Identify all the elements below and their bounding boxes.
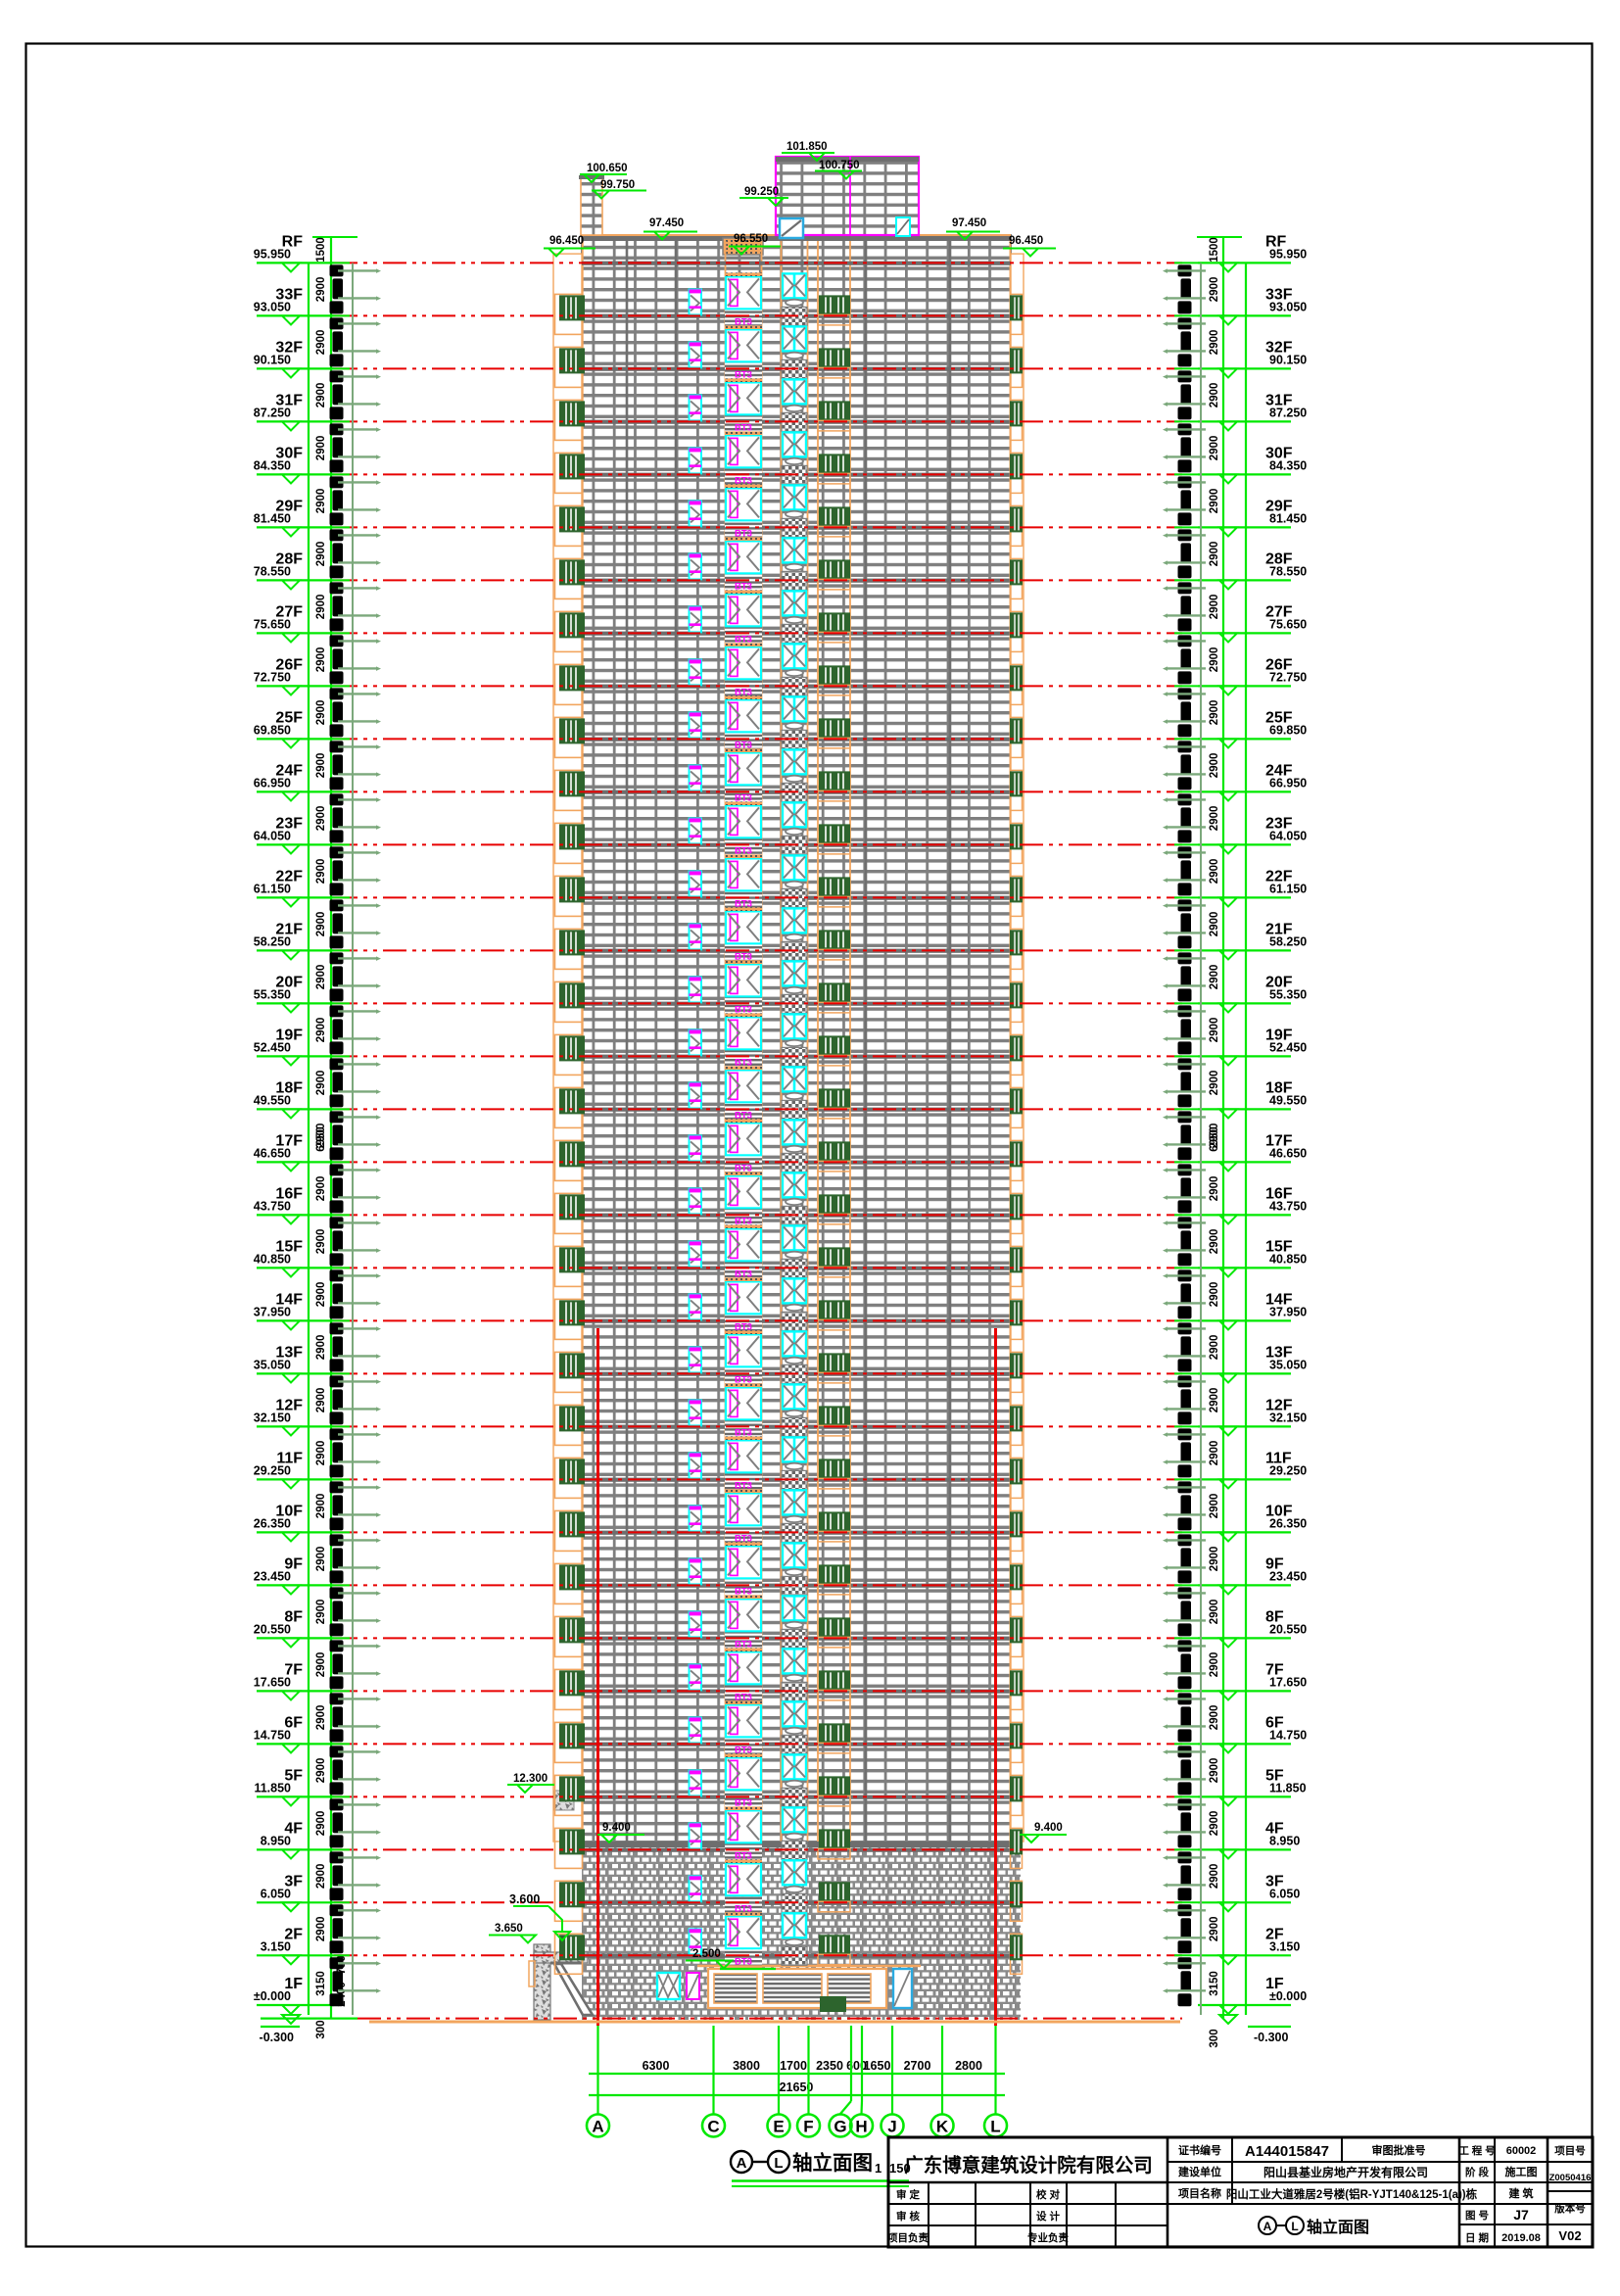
- svg-text:43.750: 43.750: [1269, 1199, 1307, 1213]
- svg-text:2900: 2900: [315, 542, 327, 567]
- svg-text:2900: 2900: [1209, 383, 1220, 408]
- svg-text:64.050: 64.050: [1269, 829, 1307, 842]
- svg-text:61.150: 61.150: [254, 882, 291, 895]
- svg-text:2900: 2900: [1209, 1282, 1220, 1308]
- svg-text:2900: 2900: [1209, 859, 1220, 885]
- svg-text:12.300: 12.300: [513, 1773, 548, 1785]
- svg-text:2900: 2900: [315, 1917, 327, 1942]
- svg-text:58.250: 58.250: [1269, 934, 1307, 948]
- svg-text:1700: 1700: [780, 2059, 807, 2073]
- svg-text:46.650: 46.650: [254, 1146, 291, 1160]
- svg-text:2900: 2900: [315, 383, 327, 408]
- svg-text:J: J: [887, 2118, 896, 2136]
- svg-text:75.650: 75.650: [1269, 617, 1307, 631]
- svg-text:100.750: 100.750: [819, 160, 860, 171]
- svg-text:2900: 2900: [1209, 1335, 1220, 1361]
- svg-text:20.550: 20.550: [1269, 1622, 1307, 1636]
- svg-text:±0.000: ±0.000: [254, 1989, 291, 2003]
- svg-text:14.750: 14.750: [1269, 1728, 1307, 1742]
- svg-text:2900: 2900: [315, 647, 327, 673]
- svg-text:66.950: 66.950: [254, 776, 291, 789]
- svg-text:3800: 3800: [733, 2059, 760, 2073]
- svg-text:2900: 2900: [315, 1018, 327, 1043]
- svg-text:2900: 2900: [315, 1705, 327, 1731]
- svg-text:6950: 6950: [1209, 1126, 1220, 1152]
- svg-text:6300: 6300: [643, 2059, 670, 2073]
- svg-text:2.500: 2.500: [692, 1948, 721, 1960]
- svg-text:2900: 2900: [315, 806, 327, 832]
- svg-text:84.350: 84.350: [254, 458, 291, 472]
- svg-text:图 号: 图 号: [1465, 2210, 1489, 2222]
- svg-text:37.950: 37.950: [1269, 1305, 1307, 1318]
- svg-text:2900: 2900: [315, 489, 327, 514]
- svg-text:C: C: [707, 2118, 719, 2136]
- svg-text:6950: 6950: [315, 1126, 327, 1152]
- svg-text:3.150: 3.150: [261, 1939, 291, 1953]
- svg-text:2900: 2900: [315, 1811, 327, 1837]
- svg-text:校 对: 校 对: [1036, 2188, 1060, 2201]
- svg-text:Z0050416: Z0050416: [1549, 2173, 1592, 2183]
- svg-text:17.650: 17.650: [254, 1675, 291, 1689]
- svg-text:2900: 2900: [315, 859, 327, 885]
- svg-text:3.600: 3.600: [509, 1892, 540, 1906]
- svg-text:H: H: [855, 2118, 867, 2136]
- svg-text:-0.300: -0.300: [260, 2031, 294, 2044]
- svg-text:100.650: 100.650: [587, 163, 628, 174]
- svg-text:审 核: 审 核: [896, 2210, 920, 2223]
- svg-text:F: F: [803, 2118, 813, 2136]
- svg-text:A: A: [592, 2118, 603, 2136]
- svg-text:A: A: [737, 2155, 747, 2172]
- svg-text:L: L: [774, 2155, 783, 2172]
- svg-text:2900: 2900: [315, 595, 327, 620]
- svg-text:95.950: 95.950: [254, 247, 291, 261]
- svg-text:29.250: 29.250: [1269, 1463, 1307, 1477]
- svg-text:40.850: 40.850: [254, 1252, 291, 1266]
- svg-text:2900: 2900: [1209, 436, 1220, 461]
- svg-text:2900: 2900: [1209, 1176, 1220, 1202]
- svg-text:55.350: 55.350: [254, 987, 291, 1001]
- svg-text:2900: 2900: [1209, 1388, 1220, 1413]
- svg-text:9.400: 9.400: [1034, 1822, 1063, 1834]
- svg-text:工 程 号: 工 程 号: [1458, 2144, 1495, 2157]
- svg-text:87.250: 87.250: [254, 406, 291, 419]
- svg-text:2900: 2900: [315, 1176, 327, 1202]
- svg-text:78.550: 78.550: [1269, 564, 1307, 578]
- svg-text:32.150: 32.150: [254, 1411, 291, 1424]
- svg-text:K: K: [936, 2118, 949, 2136]
- svg-text:20.550: 20.550: [254, 1622, 291, 1636]
- svg-text:60002: 60002: [1506, 2145, 1537, 2157]
- svg-text:版本号: 版本号: [1554, 2202, 1586, 2215]
- svg-text:26.350: 26.350: [254, 1516, 291, 1530]
- svg-text:81.450: 81.450: [1269, 511, 1307, 525]
- svg-text:64.050: 64.050: [254, 829, 291, 842]
- svg-text:L: L: [1291, 2220, 1298, 2233]
- svg-text:97.450: 97.450: [952, 217, 986, 229]
- svg-text:2900: 2900: [1209, 1600, 1220, 1625]
- svg-text:97.450: 97.450: [649, 217, 684, 229]
- svg-text:66.950: 66.950: [1269, 776, 1307, 789]
- svg-text:2900: 2900: [315, 1282, 327, 1308]
- svg-text:建设单位: 建设单位: [1178, 2165, 1221, 2178]
- svg-text:设 计: 设 计: [1036, 2210, 1060, 2223]
- svg-text:2900: 2900: [315, 1864, 327, 1889]
- svg-text:49.550: 49.550: [1269, 1093, 1307, 1107]
- svg-text:37.950: 37.950: [254, 1305, 291, 1318]
- svg-text:2900: 2900: [315, 912, 327, 937]
- svg-text:58.250: 58.250: [254, 934, 291, 948]
- svg-text:8.950: 8.950: [261, 1834, 291, 1847]
- svg-text:23.450: 23.450: [1269, 1569, 1307, 1583]
- svg-text:69.850: 69.850: [1269, 723, 1307, 737]
- svg-text:3150: 3150: [315, 1971, 327, 1996]
- svg-text:建 筑: 建 筑: [1508, 2186, 1533, 2200]
- svg-text:46.650: 46.650: [1269, 1146, 1307, 1160]
- svg-text:2900: 2900: [1209, 965, 1220, 990]
- svg-text:V02: V02: [1558, 2228, 1581, 2243]
- svg-text:55.350: 55.350: [1269, 987, 1307, 1001]
- svg-text:2900: 2900: [1209, 1547, 1220, 1572]
- svg-text:2900: 2900: [315, 1494, 327, 1519]
- svg-text:2019.08: 2019.08: [1501, 2232, 1541, 2244]
- svg-text:2900: 2900: [1209, 1494, 1220, 1519]
- svg-text:审图批准号: 审图批准号: [1372, 2143, 1426, 2157]
- svg-text:2350: 2350: [816, 2059, 843, 2073]
- svg-text:2900: 2900: [315, 1335, 327, 1361]
- svg-text:2900: 2900: [1209, 1758, 1220, 1784]
- svg-text:A: A: [1263, 2220, 1272, 2233]
- svg-text:96.450: 96.450: [549, 235, 584, 247]
- svg-text:专业负责: 专业负责: [1027, 2231, 1069, 2244]
- svg-text:2900: 2900: [1209, 647, 1220, 673]
- svg-text:90.150: 90.150: [254, 353, 291, 366]
- svg-text:G: G: [834, 2118, 846, 2136]
- svg-text:阳山工业大道雅居2号楼(铝R-YJT140&125-1(a): 阳山工业大道雅居2号楼(铝R-YJT140&125-1(a))栋: [1226, 2187, 1478, 2201]
- svg-text:101.850: 101.850: [786, 141, 828, 153]
- svg-text:2900: 2900: [315, 1600, 327, 1625]
- svg-text:61.150: 61.150: [1269, 882, 1307, 895]
- svg-text:2900: 2900: [1209, 595, 1220, 620]
- svg-text:87.250: 87.250: [1269, 406, 1307, 419]
- svg-text:2900: 2900: [1209, 1071, 1220, 1096]
- svg-text:2900: 2900: [1209, 700, 1220, 726]
- svg-text:75.650: 75.650: [254, 617, 291, 631]
- svg-text:证书编号: 证书编号: [1178, 2143, 1221, 2157]
- svg-text:1: 1: [875, 2161, 881, 2176]
- svg-text:52.450: 52.450: [1269, 1040, 1307, 1054]
- svg-text:96.450: 96.450: [1009, 235, 1043, 247]
- svg-text:69.850: 69.850: [254, 723, 291, 737]
- svg-text:2900: 2900: [1209, 753, 1220, 779]
- svg-text:72.750: 72.750: [1269, 670, 1307, 684]
- svg-text:1650: 1650: [864, 2059, 891, 2073]
- svg-text:96.550: 96.550: [734, 233, 768, 245]
- svg-text:J7: J7: [1513, 2207, 1529, 2223]
- svg-text:11.850: 11.850: [1269, 1781, 1307, 1794]
- svg-text:阶 段: 阶 段: [1465, 2166, 1489, 2178]
- svg-text:93.050: 93.050: [254, 300, 291, 313]
- svg-text:84.350: 84.350: [1269, 458, 1307, 472]
- svg-text:A144015847: A144015847: [1245, 2143, 1329, 2160]
- svg-text:90.150: 90.150: [1269, 353, 1307, 366]
- svg-text:14.750: 14.750: [254, 1728, 291, 1742]
- svg-text:11.850: 11.850: [254, 1781, 291, 1794]
- svg-text:2900: 2900: [1209, 542, 1220, 567]
- svg-text:17.650: 17.650: [1269, 1675, 1307, 1689]
- svg-text:35.050: 35.050: [254, 1358, 291, 1371]
- svg-text:2900: 2900: [315, 1229, 327, 1255]
- svg-text:8.950: 8.950: [1269, 1834, 1300, 1847]
- svg-text:审 定: 审 定: [896, 2188, 920, 2201]
- svg-text:3.650: 3.650: [495, 1923, 523, 1935]
- svg-text:2900: 2900: [315, 277, 327, 303]
- svg-text:95.950: 95.950: [1269, 247, 1307, 261]
- svg-text:2900: 2900: [315, 1547, 327, 1572]
- svg-text:78.550: 78.550: [254, 564, 291, 578]
- svg-text:2900: 2900: [1209, 1229, 1220, 1255]
- svg-text:项目负责: 项目负责: [887, 2231, 929, 2244]
- svg-text:2900: 2900: [315, 700, 327, 726]
- svg-text:40.850: 40.850: [1269, 1252, 1307, 1266]
- svg-text:2900: 2900: [1209, 1811, 1220, 1837]
- svg-text:2900: 2900: [1209, 330, 1220, 356]
- svg-text:2900: 2900: [1209, 277, 1220, 303]
- svg-text:3150: 3150: [1209, 1971, 1220, 1996]
- svg-text:2900: 2900: [315, 1441, 327, 1466]
- svg-text:2900: 2900: [315, 1652, 327, 1678]
- svg-text:2900: 2900: [315, 436, 327, 461]
- svg-text:81.450: 81.450: [254, 511, 291, 525]
- svg-text:1500: 1500: [315, 237, 327, 263]
- svg-text:2900: 2900: [315, 1071, 327, 1096]
- svg-text:99.250: 99.250: [744, 186, 779, 198]
- svg-text:3.150: 3.150: [1269, 1939, 1300, 1953]
- svg-text:2900: 2900: [1209, 1441, 1220, 1466]
- svg-text:2900: 2900: [1209, 1705, 1220, 1731]
- svg-text:2900: 2900: [1209, 1917, 1220, 1942]
- svg-text:43.750: 43.750: [254, 1199, 291, 1213]
- svg-text:99.750: 99.750: [600, 179, 635, 191]
- svg-text:L: L: [990, 2118, 1000, 2136]
- svg-text:9.400: 9.400: [602, 1822, 631, 1834]
- svg-text:2900: 2900: [1209, 912, 1220, 937]
- svg-text:2900: 2900: [315, 330, 327, 356]
- svg-text:2900: 2900: [315, 1388, 327, 1413]
- svg-text:32.150: 32.150: [1269, 1411, 1307, 1424]
- svg-text:2900: 2900: [315, 965, 327, 990]
- svg-text:29.250: 29.250: [254, 1463, 291, 1477]
- svg-text:6.050: 6.050: [261, 1887, 291, 1900]
- svg-text:项目号: 项目号: [1554, 2145, 1586, 2157]
- svg-text:施工图: 施工图: [1505, 2165, 1538, 2178]
- svg-text:2900: 2900: [1209, 1652, 1220, 1678]
- svg-text:日 期: 日 期: [1465, 2231, 1489, 2244]
- svg-text:2900: 2900: [1209, 489, 1220, 514]
- svg-text:2700: 2700: [904, 2059, 931, 2073]
- svg-text:49.550: 49.550: [254, 1093, 291, 1107]
- svg-text:1500: 1500: [1209, 237, 1220, 263]
- svg-text:2900: 2900: [315, 1758, 327, 1784]
- svg-text:35.050: 35.050: [1269, 1358, 1307, 1371]
- svg-text:广东博意建筑设计院有限公司: 广东博意建筑设计院有限公司: [904, 2154, 1153, 2176]
- svg-text:26.350: 26.350: [1269, 1516, 1307, 1530]
- svg-text:2900: 2900: [1209, 1018, 1220, 1043]
- svg-text:300: 300: [315, 2020, 327, 2038]
- svg-text:阳山县基业房地产开发有限公司: 阳山县基业房地产开发有限公司: [1263, 2165, 1428, 2179]
- svg-text:E: E: [773, 2118, 784, 2136]
- svg-text:项目名称: 项目名称: [1178, 2186, 1221, 2200]
- svg-text:6.050: 6.050: [1269, 1887, 1300, 1900]
- svg-text:轴立面图: 轴立面图: [1307, 2218, 1369, 2236]
- svg-text:-0.300: -0.300: [1254, 2031, 1288, 2044]
- svg-text:轴立面图: 轴立面图: [792, 2151, 873, 2175]
- svg-text:72.750: 72.750: [254, 670, 291, 684]
- svg-text:±0.000: ±0.000: [1269, 1989, 1307, 2003]
- svg-text:BT3: BT3: [735, 1956, 752, 1967]
- svg-text:300: 300: [1209, 2029, 1220, 2047]
- svg-text:52.450: 52.450: [254, 1040, 291, 1054]
- svg-text:93.050: 93.050: [1269, 300, 1307, 313]
- svg-text:23.450: 23.450: [254, 1569, 291, 1583]
- svg-text:2900: 2900: [315, 753, 327, 779]
- svg-text:2800: 2800: [955, 2059, 982, 2073]
- svg-text:2900: 2900: [1209, 806, 1220, 832]
- svg-text:2900: 2900: [1209, 1864, 1220, 1889]
